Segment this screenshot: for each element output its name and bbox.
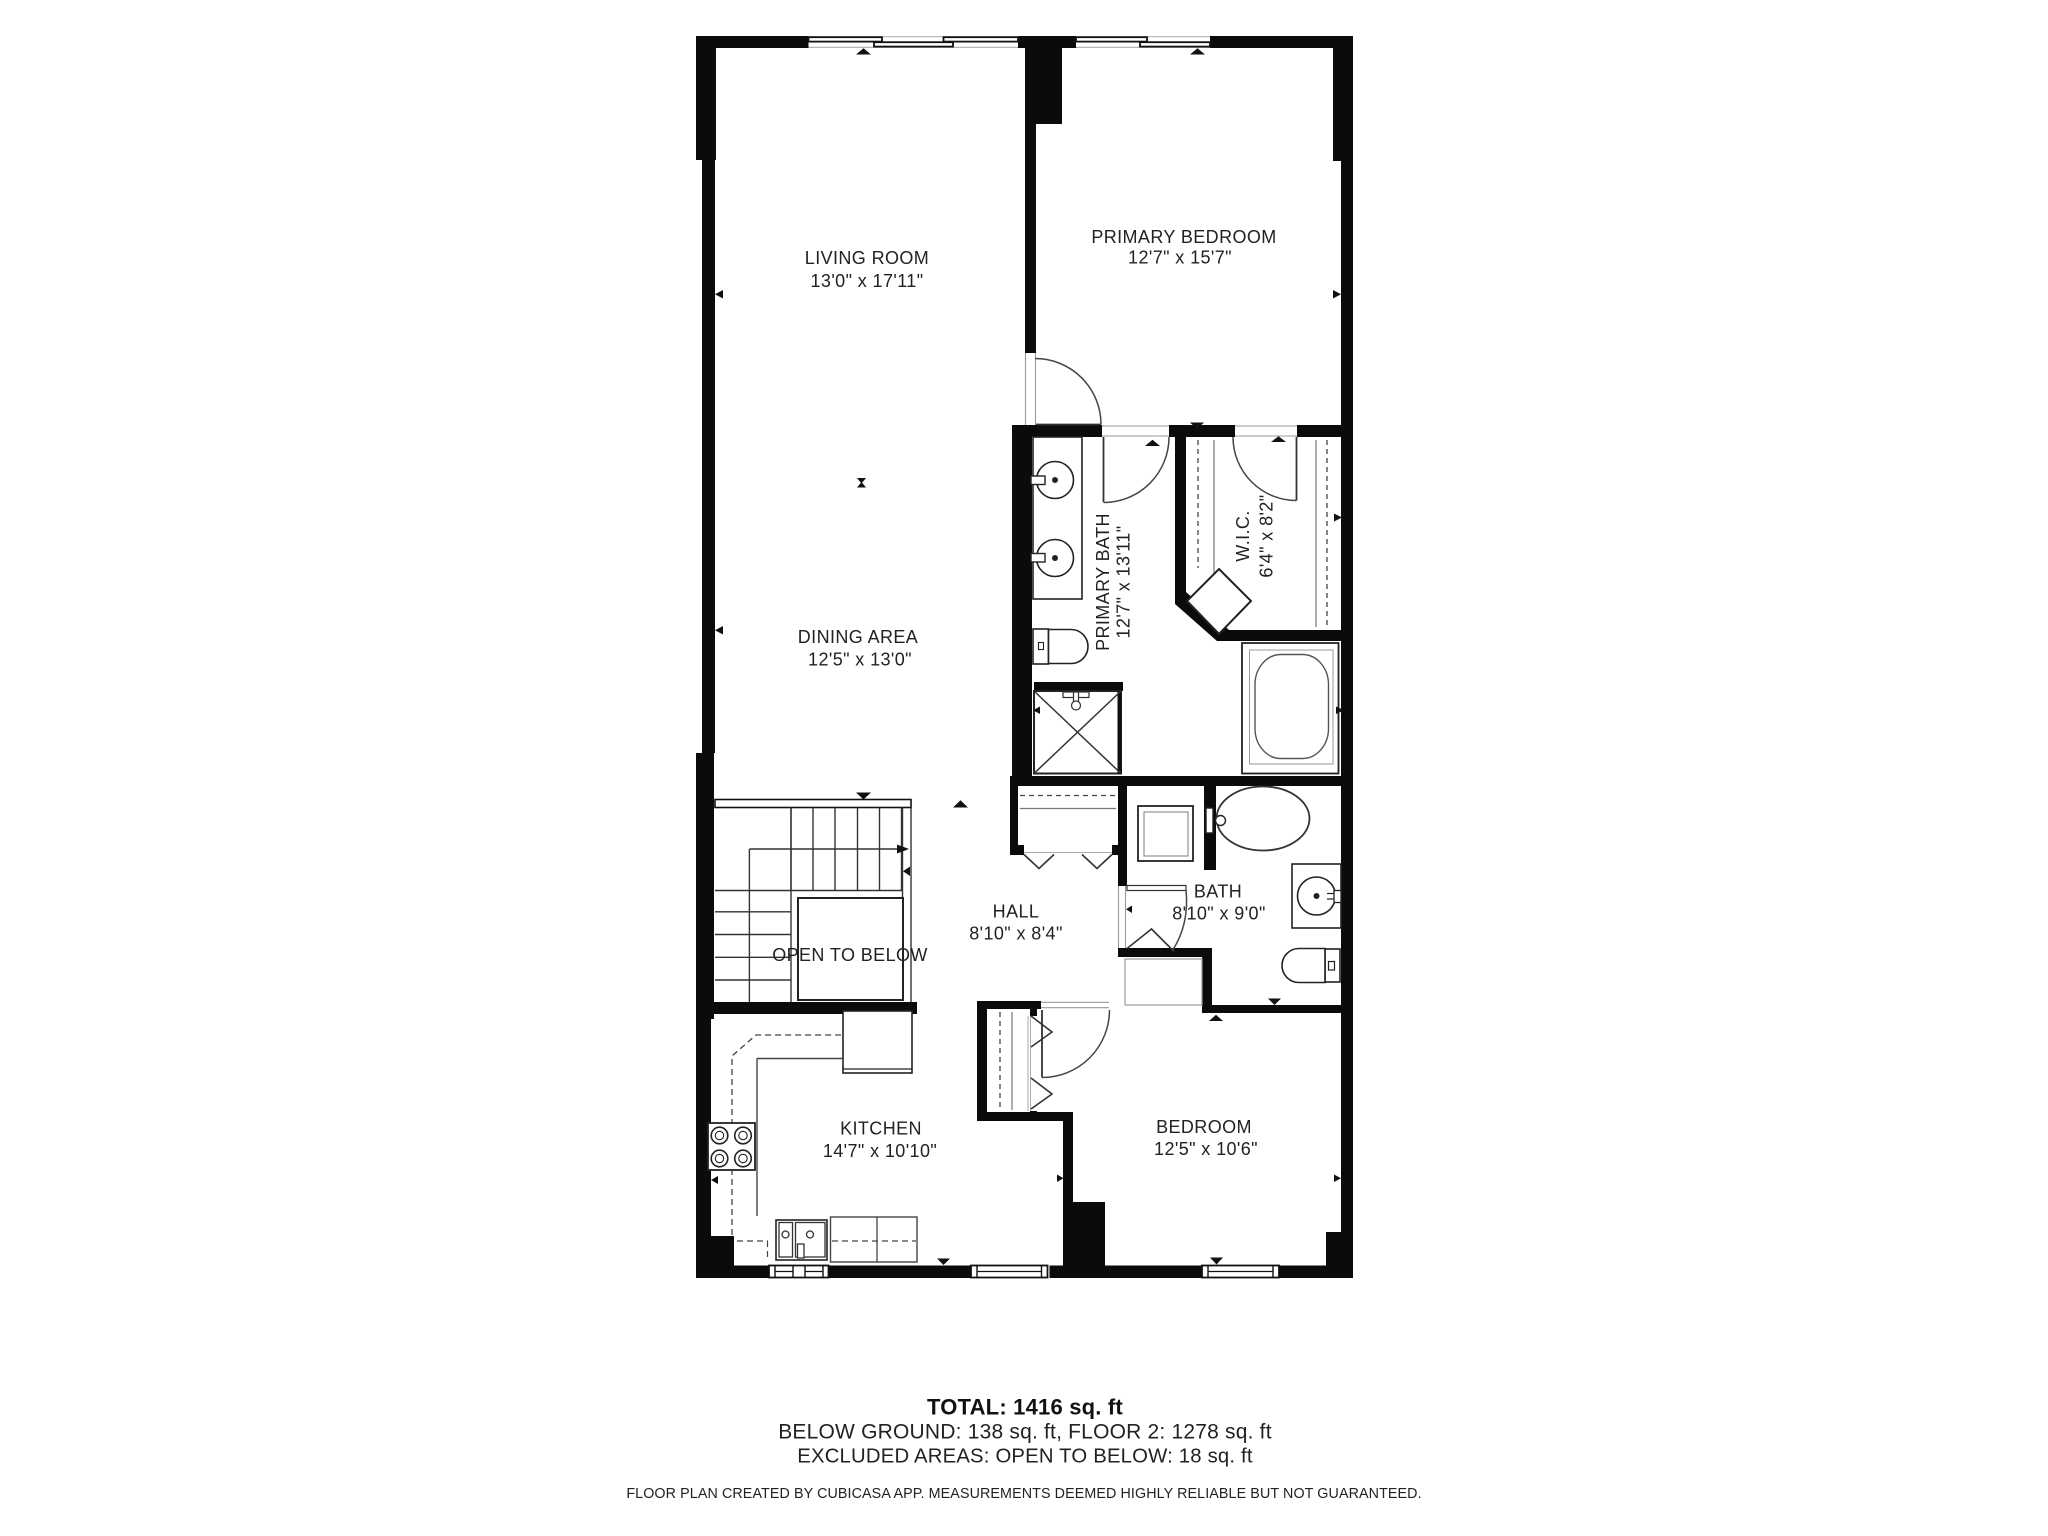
svg-text:BATH: BATH [1194,882,1242,902]
svg-text:12'7" x 15'7": 12'7" x 15'7" [1128,248,1232,268]
svg-text:DINING AREA: DINING AREA [798,627,918,647]
svg-text:14'7" x 10'10": 14'7" x 10'10" [823,1141,937,1161]
svg-text:PRIMARY BEDROOM: PRIMARY BEDROOM [1091,227,1276,247]
svg-text:KITCHEN: KITCHEN [840,1119,922,1139]
svg-text:FLOOR PLAN CREATED BY CUBICASA: FLOOR PLAN CREATED BY CUBICASA APP. MEAS… [626,1486,1421,1502]
svg-text:OPEN TO BELOW: OPEN TO BELOW [772,945,928,965]
svg-text:13'0" x 17'11": 13'0" x 17'11" [811,271,924,291]
svg-text:8'10" x 8'4": 8'10" x 8'4" [969,924,1063,944]
svg-text:12'5" x 13'0": 12'5" x 13'0" [808,650,912,670]
svg-text:W.I.C.: W.I.C. [1233,510,1253,561]
svg-text:BELOW GROUND: 138 sq. ft, FLOO: BELOW GROUND: 138 sq. ft, FLOOR 2: 1278 … [778,1421,1272,1444]
svg-text:6'4" x 8'2": 6'4" x 8'2" [1257,494,1277,577]
svg-text:TOTAL: 1416 sq. ft: TOTAL: 1416 sq. ft [927,1395,1123,1420]
svg-text:12'7" x 13'11": 12'7" x 13'11" [1114,526,1134,639]
svg-text:EXCLUDED AREAS: OPEN TO BELOW:: EXCLUDED AREAS: OPEN TO BELOW: 18 sq. ft [797,1446,1253,1468]
svg-text:8'10" x 9'0": 8'10" x 9'0" [1172,904,1266,924]
svg-text:12'5" x 10'6": 12'5" x 10'6" [1154,1139,1258,1159]
svg-text:BEDROOM: BEDROOM [1156,1117,1252,1137]
svg-text:HALL: HALL [993,902,1040,922]
svg-text:LIVING ROOM: LIVING ROOM [805,248,929,268]
svg-text:PRIMARY BATH: PRIMARY BATH [1093,513,1113,651]
